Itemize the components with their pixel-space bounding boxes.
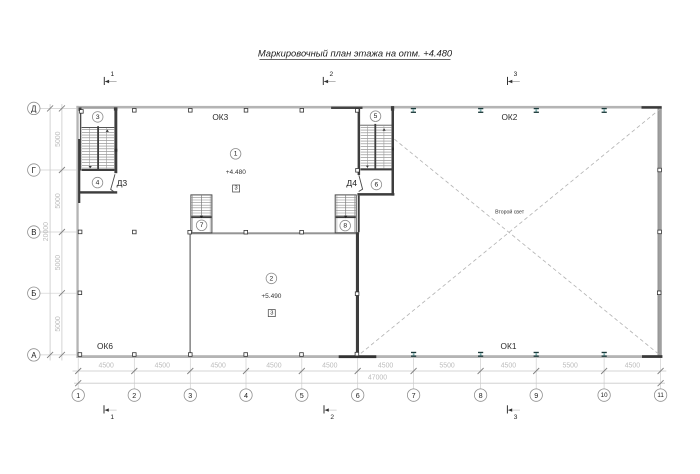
svg-text:+4.480: +4.480	[226, 169, 246, 176]
svg-text:2: 2	[330, 414, 334, 421]
svg-text:3: 3	[270, 310, 273, 316]
svg-text:ОК3: ОК3	[212, 112, 228, 122]
svg-text:7: 7	[412, 391, 416, 400]
svg-text:3: 3	[514, 71, 518, 78]
svg-text:3: 3	[188, 391, 192, 400]
svg-text:3: 3	[235, 186, 238, 192]
svg-text:Второй свет: Второй свет	[495, 209, 525, 216]
svg-text:Д4: Д4	[346, 178, 357, 188]
svg-text:20000: 20000	[43, 222, 50, 241]
svg-text:4500: 4500	[322, 363, 337, 370]
svg-text:2: 2	[270, 275, 274, 282]
svg-text:6: 6	[356, 391, 360, 400]
svg-text:5: 5	[300, 391, 304, 400]
svg-text:5: 5	[374, 113, 378, 120]
svg-text:+5.490: +5.490	[261, 293, 281, 300]
svg-text:5500: 5500	[439, 363, 454, 370]
svg-text:5000: 5000	[55, 316, 62, 331]
svg-text:8: 8	[343, 223, 347, 230]
svg-text:47000: 47000	[368, 374, 387, 381]
svg-text:1: 1	[234, 151, 238, 158]
svg-text:4500: 4500	[501, 363, 516, 370]
svg-text:В: В	[31, 228, 36, 237]
svg-text:7: 7	[200, 222, 204, 229]
svg-text:1: 1	[76, 391, 80, 400]
svg-text:4: 4	[244, 391, 248, 400]
svg-text:6: 6	[375, 181, 379, 188]
svg-text:Маркировочный план этажа на от: Маркировочный план этажа на отм. +4.480	[258, 47, 453, 58]
svg-text:11: 11	[657, 392, 664, 399]
svg-text:8: 8	[479, 391, 483, 400]
svg-text:3: 3	[96, 114, 100, 121]
svg-text:9: 9	[534, 391, 538, 400]
svg-text:4500: 4500	[625, 363, 640, 370]
svg-text:Д3: Д3	[117, 178, 128, 188]
svg-text:5500: 5500	[563, 363, 578, 370]
svg-text:5000: 5000	[55, 255, 62, 270]
svg-text:Б: Б	[31, 289, 36, 298]
svg-text:ОК1: ОК1	[501, 341, 517, 351]
svg-text:2: 2	[132, 391, 136, 400]
svg-text:4500: 4500	[266, 363, 281, 370]
svg-text:4500: 4500	[99, 363, 114, 370]
svg-text:10: 10	[601, 392, 608, 399]
svg-text:4: 4	[96, 180, 100, 187]
svg-text:А: А	[31, 351, 37, 360]
svg-text:4500: 4500	[155, 363, 170, 370]
svg-text:4500: 4500	[211, 363, 226, 370]
svg-text:1: 1	[110, 71, 114, 78]
svg-text:2: 2	[329, 71, 333, 78]
svg-text:1: 1	[110, 414, 114, 421]
svg-text:ОК2: ОК2	[501, 112, 517, 122]
svg-text:ОК6: ОК6	[97, 341, 113, 351]
svg-text:5000: 5000	[55, 193, 62, 208]
svg-text:4500: 4500	[378, 363, 393, 370]
svg-text:Д: Д	[31, 104, 37, 113]
svg-text:3: 3	[514, 414, 518, 421]
svg-text:5000: 5000	[55, 131, 62, 146]
